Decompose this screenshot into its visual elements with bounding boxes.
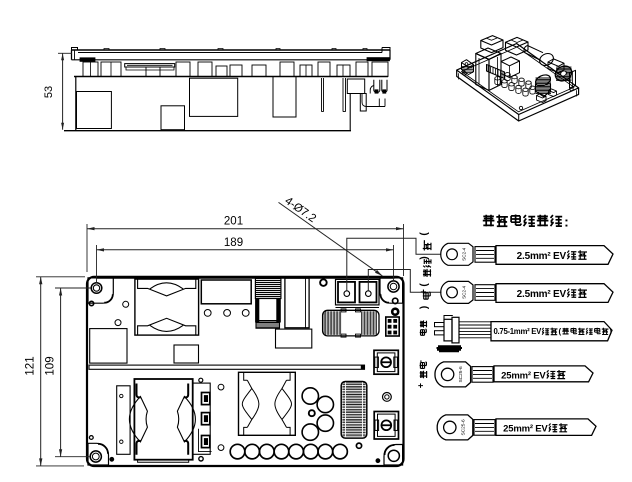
- svg-text::: :: [564, 214, 569, 230]
- svg-text:): ): [419, 306, 430, 309]
- svg-text:SC2-4: SC2-4: [462, 285, 467, 298]
- svg-text:25mm² EV: 25mm² EV: [501, 370, 546, 381]
- svg-text:0.75-1mm² EV: 0.75-1mm² EV: [494, 327, 543, 336]
- svg-text:189: 189: [224, 237, 243, 249]
- svg-text:2.5mm² EV: 2.5mm² EV: [517, 289, 567, 300]
- svg-text:SC25-6: SC25-6: [458, 366, 464, 383]
- svg-text:SC25-6: SC25-6: [460, 419, 466, 436]
- svg-text:+: +: [416, 383, 426, 388]
- svg-text:): ): [419, 256, 430, 259]
- svg-text:109: 109: [45, 356, 57, 375]
- svg-text:201: 201: [224, 216, 243, 228]
- svg-text:121: 121: [25, 356, 37, 375]
- svg-text:53: 53: [43, 86, 55, 98]
- svg-text:SC2-4: SC2-4: [462, 247, 467, 260]
- svg-text:(: (: [558, 327, 561, 336]
- svg-text:2.5mm² EV: 2.5mm² EV: [517, 251, 567, 262]
- svg-text:): ): [609, 327, 612, 336]
- svg-text:25mm² EV: 25mm² EV: [503, 424, 548, 435]
